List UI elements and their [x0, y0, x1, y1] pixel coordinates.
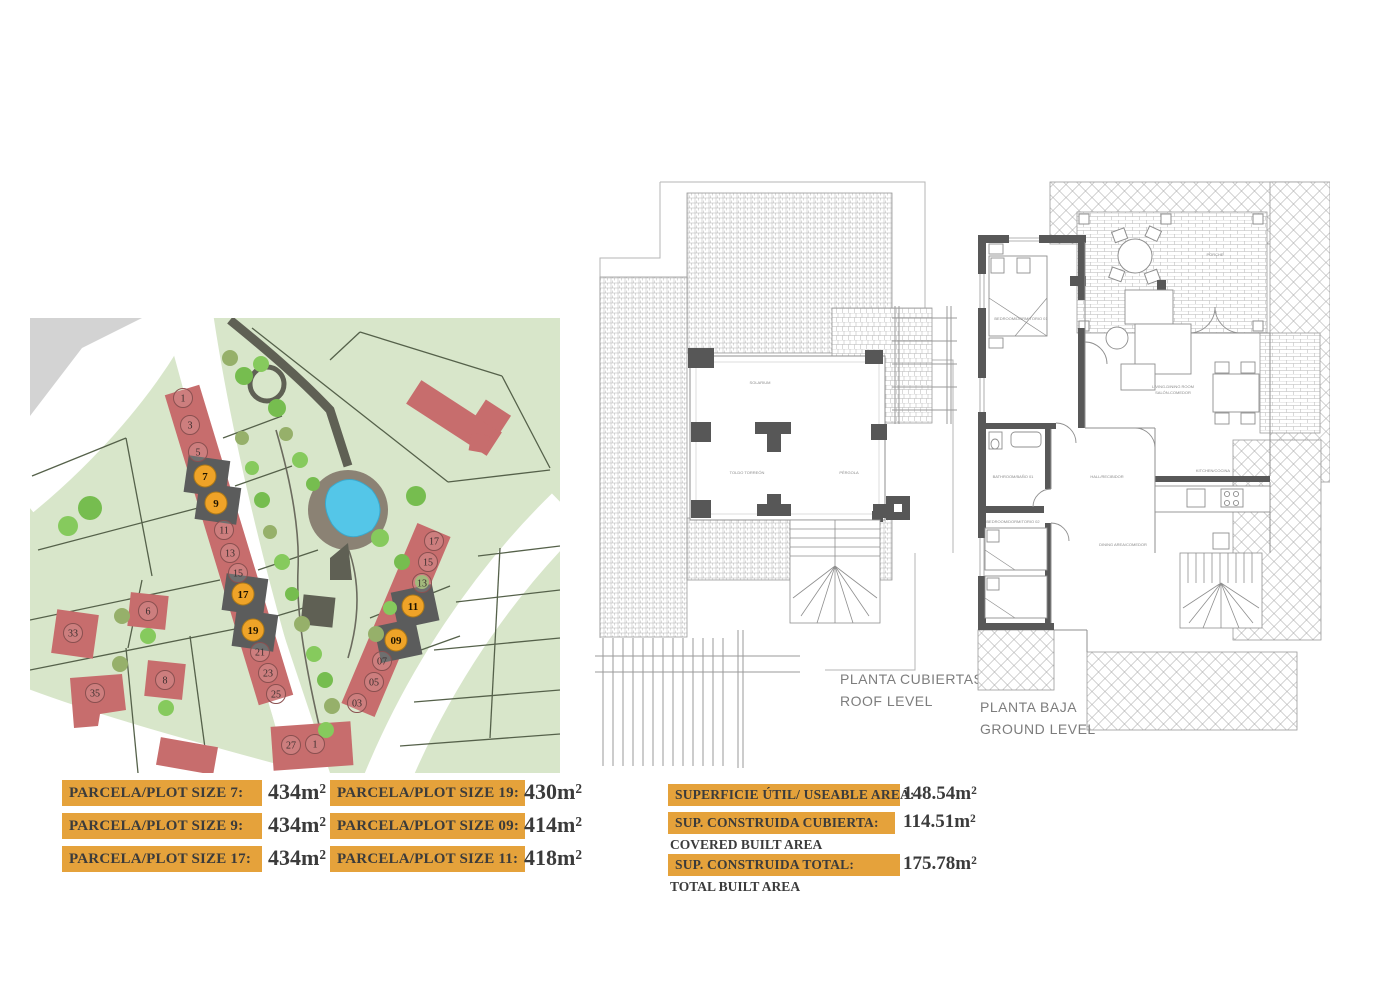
plot-size-label-17: PARCELA/PLOT SIZE 17:: [62, 846, 262, 872]
useable-area-value: 148.54m²: [903, 783, 977, 805]
plot-number: 03: [352, 699, 362, 710]
plot-number: 13: [417, 579, 427, 590]
plot-number: 5: [196, 448, 201, 459]
plot-number-highlight: 7: [202, 471, 208, 483]
plot-size-value-09: 414m²: [524, 812, 582, 838]
plot-number-highlight: 17: [238, 589, 250, 601]
room-label-hall: HALL/RECIBIDOR: [1090, 474, 1123, 479]
plot-size-value-11: 418m²: [524, 845, 582, 871]
site-plan-map: 1 3 5 11 13 15 21 23 25 27 1 17 15 13 07…: [30, 318, 560, 773]
plot-number: 8: [163, 676, 168, 687]
plot-number: 07: [377, 657, 387, 668]
plot-number-highlight: 09: [391, 635, 403, 647]
plot-number: 15: [423, 558, 433, 569]
plot-number: 15: [233, 569, 243, 580]
total-built-label: SUP. CONSTRUIDA TOTAL:: [668, 854, 900, 876]
plot-number: 1: [313, 740, 318, 751]
plot-number: 35: [90, 689, 100, 700]
useable-area-label: SUPERFICIE ÚTIL/ USEABLE AREA:: [668, 784, 900, 806]
brochure-page: 1 3 5 11 13 15 21 23 25 27 1 17 15 13 07…: [0, 0, 1400, 989]
ground-plan-title: PLANTA BAJAGROUND LEVEL: [980, 696, 1096, 740]
plot-number: 6: [146, 607, 151, 618]
plot-number: 11: [219, 526, 229, 537]
stairs: [790, 520, 880, 623]
roof-plan-title-es: PLANTA CUBIERTAS: [840, 671, 983, 687]
roof-plan-title-en: ROOF LEVEL: [840, 693, 933, 709]
plot-number-highlight: 19: [248, 625, 260, 637]
plot-number: 17: [429, 537, 439, 548]
covered-built-value: 114.51m²: [903, 811, 976, 833]
stairs: [1180, 553, 1262, 628]
plot-size-value-9: 434m²: [268, 812, 326, 838]
plot-size-value-7: 434m²: [268, 779, 326, 805]
covered-built-sublabel: COVERED BUILT AREA: [670, 838, 822, 852]
total-built-value: 175.78m²: [903, 853, 977, 875]
plot-size-label-9: PARCELA/PLOT SIZE 9:: [62, 813, 262, 839]
plot-number-highlight: 9: [213, 498, 219, 510]
plot-size-label-19: PARCELA/PLOT SIZE 19:: [330, 780, 525, 806]
plot-number: 21: [255, 648, 265, 659]
total-built-sublabel: TOTAL BUILT AREA: [670, 880, 800, 894]
solarium-block: SOLARIUM TOLDO TORREÓN PÉRGOLA: [688, 348, 887, 520]
ground-plan-title-es: PLANTA BAJA: [980, 699, 1077, 715]
plot-size-label-09: PARCELA/PLOT SIZE 09:: [330, 813, 525, 839]
plot-number: 1: [181, 394, 186, 405]
plot-size-value-17: 434m²: [268, 845, 326, 871]
room-label-bathroom: BATHROOM/BAÑO 01: [993, 474, 1035, 479]
room-label-kitchen: KITCHEN/COCINA: [1196, 468, 1231, 473]
ground-plan: PORCHE: [975, 178, 1330, 735]
plot-size-label-11: PARCELA/PLOT SIZE 11:: [330, 846, 525, 872]
ground-plan-title-en: GROUND LEVEL: [980, 721, 1096, 737]
plot-number: 05: [369, 678, 379, 689]
plot-number: 3: [188, 421, 193, 432]
plot-number: 27: [286, 741, 296, 752]
room-label-toldo: TOLDO TORREÓN: [730, 470, 765, 475]
plot-number: 13: [225, 549, 235, 560]
plot-number: 25: [271, 690, 281, 701]
room-label-pergola: PÉRGOLA: [839, 470, 859, 475]
plot-number-highlight: 11: [408, 601, 418, 613]
room-label-solarium: SOLARIUM: [750, 380, 771, 385]
room-label-porch: PORCHE: [1206, 252, 1223, 257]
plot-size-value-19: 430m²: [524, 779, 582, 805]
plot-size-label-7: PARCELA/PLOT SIZE 7:: [62, 780, 262, 806]
room-label-living1: LIVING-DINING ROOM: [1152, 384, 1194, 389]
room-label-distributor: DINING AREA/COMEDOR: [1099, 542, 1147, 547]
room-label-bedroom1: BEDROOM/DORMITORIO 01: [994, 316, 1048, 321]
plot-number: 23: [263, 669, 273, 680]
roof-plan-title: PLANTA CUBIERTASROOF LEVEL: [840, 668, 983, 712]
pergola-slats: [595, 630, 800, 768]
room-label-living2: SALÓN-COMEDOR: [1155, 390, 1191, 395]
covered-built-label: SUP. CONSTRUIDA CUBIERTA:: [668, 812, 895, 834]
plot-number: 33: [68, 629, 78, 640]
patio-table: [1118, 239, 1152, 273]
room-label-bedroom2: BEDROOM/DORMITORIO 02: [986, 519, 1040, 524]
